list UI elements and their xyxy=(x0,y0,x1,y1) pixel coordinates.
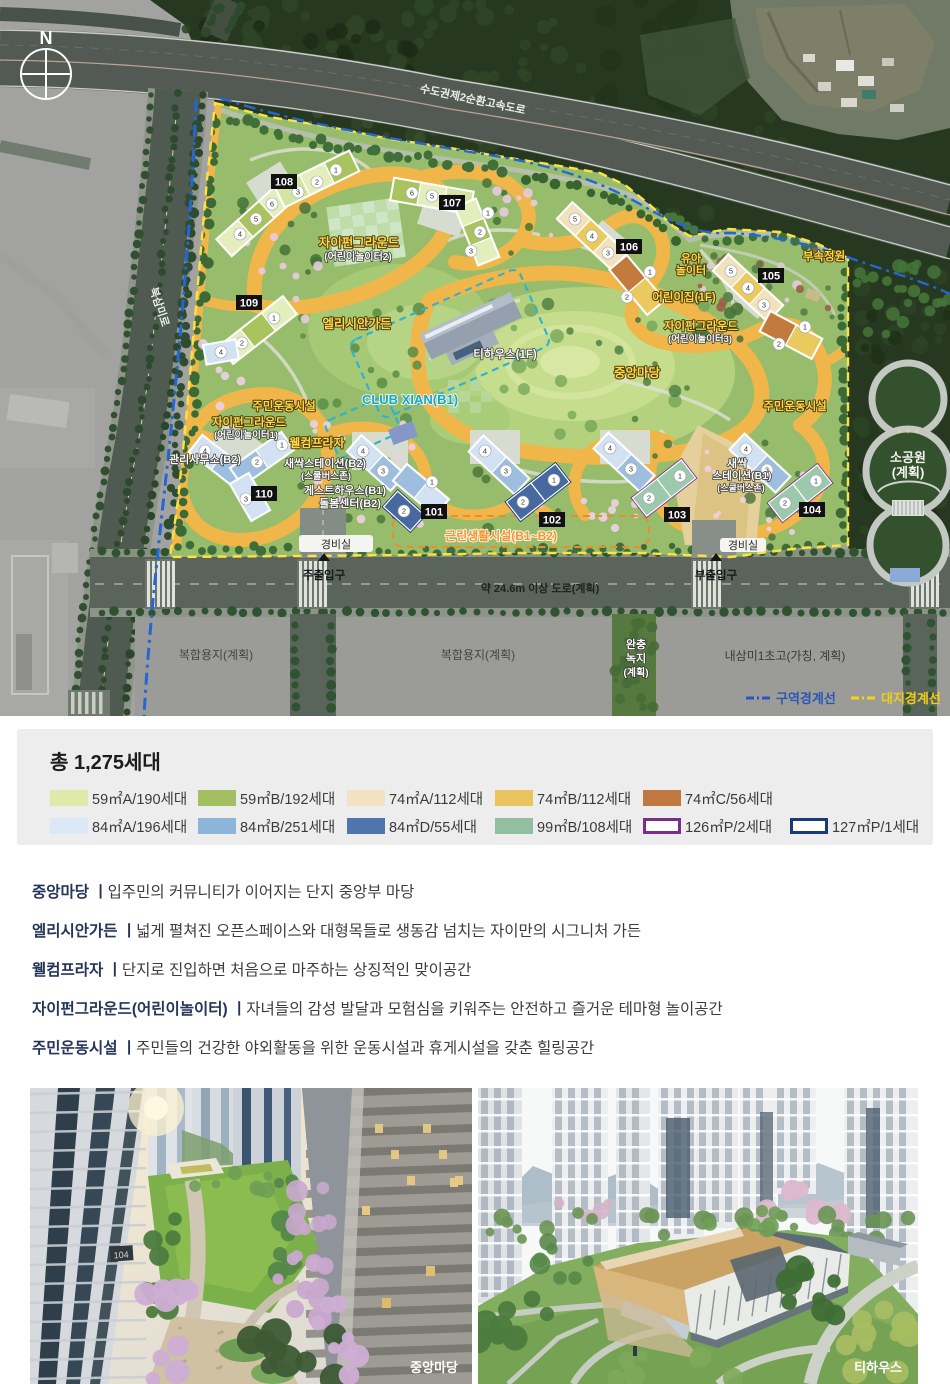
svg-text:약 24.6m 이상 도로(계획): 약 24.6m 이상 도로(계획) xyxy=(481,581,600,595)
svg-text:2: 2 xyxy=(402,507,406,516)
svg-text:복합용지(계획): 복합용지(계획) xyxy=(441,648,515,662)
svg-text:3: 3 xyxy=(606,249,610,258)
svg-text:대지경계선: 대지경계선 xyxy=(881,691,941,706)
svg-text:2: 2 xyxy=(315,178,319,187)
svg-text:어린이집(1F): 어린이집(1F) xyxy=(652,290,716,304)
svg-text:101: 101 xyxy=(425,507,443,519)
svg-text:3: 3 xyxy=(244,495,248,504)
svg-text:4: 4 xyxy=(219,348,223,357)
svg-text:106: 106 xyxy=(620,242,638,254)
svg-text:2: 2 xyxy=(255,458,259,467)
svg-text:(어린이놀이터1): (어린이놀이터1) xyxy=(214,429,278,441)
svg-text:(스쿨버스존): (스쿨버스존) xyxy=(301,470,351,482)
svg-text:6: 6 xyxy=(270,200,274,209)
svg-text:자이펀그라운드: 자이펀그라운드 xyxy=(664,319,738,333)
svg-text:4: 4 xyxy=(483,447,487,456)
svg-text:돌봄센터(B2): 돌봄센터(B2) xyxy=(319,496,381,510)
svg-text:108: 108 xyxy=(275,177,293,189)
svg-text:주민운동시설: 주민운동시설 xyxy=(252,399,315,413)
svg-text:복합용지(계획): 복합용지(계획) xyxy=(179,648,253,662)
svg-text:구역경계선: 구역경계선 xyxy=(776,691,836,706)
svg-text:웰컴프라자: 웰컴프라자 xyxy=(289,435,344,450)
svg-text:CLUB XIAN(B1): CLUB XIAN(B1) xyxy=(362,392,458,407)
svg-text:103: 103 xyxy=(668,510,686,522)
svg-text:1: 1 xyxy=(280,441,284,450)
svg-text:스테이션(B1): 스테이션(B1) xyxy=(712,469,771,482)
svg-text:3: 3 xyxy=(762,301,766,310)
svg-text:티하우스: 티하우스 xyxy=(854,1360,902,1375)
svg-text:3: 3 xyxy=(629,465,633,474)
svg-text:부출입구: 부출입구 xyxy=(695,568,738,582)
svg-text:1: 1 xyxy=(814,477,818,486)
svg-text:2: 2 xyxy=(478,228,482,237)
svg-text:경비실: 경비실 xyxy=(321,538,351,551)
svg-text:(스쿨버스존): (스쿨버스존) xyxy=(717,482,764,493)
svg-text:105: 105 xyxy=(762,271,780,283)
svg-text:1: 1 xyxy=(552,476,556,485)
svg-text:2: 2 xyxy=(783,499,787,508)
svg-text:✶ ✶ ✶: ✶ ✶ ✶ xyxy=(896,427,921,436)
svg-text:109: 109 xyxy=(240,298,258,310)
svg-text:104: 104 xyxy=(113,1249,129,1260)
svg-text:자이펀그라운드: 자이펀그라운드 xyxy=(319,235,400,250)
svg-text:엘리시안가든: 엘리시안가든 xyxy=(322,316,392,331)
svg-text:놀이터: 놀이터 xyxy=(676,263,706,277)
svg-text:107: 107 xyxy=(443,198,461,210)
svg-text:자이펀그라운드: 자이펀그라운드 xyxy=(212,415,286,429)
svg-text:5: 5 xyxy=(573,215,577,224)
svg-text:1: 1 xyxy=(430,478,434,487)
svg-text:4: 4 xyxy=(608,444,612,453)
svg-text:경비실: 경비실 xyxy=(728,539,758,552)
svg-text:게스트하우스(B1): 게스트하우스(B1) xyxy=(304,483,386,497)
svg-text:4: 4 xyxy=(744,445,748,454)
svg-text:근린생활시설(B1~B2): 근린생활시설(B1~B2) xyxy=(445,528,557,543)
svg-text:소공원: 소공원 xyxy=(890,450,926,465)
svg-text:1: 1 xyxy=(648,268,652,277)
svg-text:티하우스(1F): 티하우스(1F) xyxy=(473,347,537,361)
svg-text:6: 6 xyxy=(410,189,414,198)
svg-text:5: 5 xyxy=(254,215,258,224)
svg-text:4: 4 xyxy=(238,230,242,239)
svg-text:주출입구: 주출입구 xyxy=(303,568,346,582)
svg-text:2: 2 xyxy=(625,293,629,302)
svg-text:중앙마당: 중앙마당 xyxy=(614,365,661,380)
svg-text:102: 102 xyxy=(543,515,561,527)
svg-text:110: 110 xyxy=(255,489,273,501)
svg-text:주민운동시설: 주민운동시설 xyxy=(763,399,826,413)
svg-text:완충: 완충 xyxy=(626,637,646,651)
svg-text:1: 1 xyxy=(486,209,490,218)
svg-text:3: 3 xyxy=(504,467,508,476)
svg-text:2: 2 xyxy=(647,494,651,503)
svg-text:2: 2 xyxy=(521,498,525,507)
svg-text:3: 3 xyxy=(469,247,473,256)
svg-text:부속정원: 부속정원 xyxy=(803,249,845,263)
svg-text:5: 5 xyxy=(430,192,434,201)
svg-text:104: 104 xyxy=(803,505,822,517)
svg-text:3: 3 xyxy=(381,467,385,476)
svg-text:새싹: 새싹 xyxy=(727,456,747,470)
svg-text:새싹스테이션(B2): 새싹스테이션(B2) xyxy=(284,456,366,470)
svg-text:녹지: 녹지 xyxy=(626,651,646,665)
svg-text:1: 1 xyxy=(803,323,807,332)
svg-text:(계획): (계획) xyxy=(623,666,648,679)
svg-text:유아: 유아 xyxy=(681,251,702,265)
svg-text:N: N xyxy=(40,28,53,48)
svg-text:4: 4 xyxy=(746,284,750,293)
svg-text:1: 1 xyxy=(678,472,682,481)
svg-text:관리사무소(B2): 관리사무소(B2) xyxy=(169,452,241,466)
svg-text:(어린이놀이터3): (어린이놀이터3) xyxy=(668,333,732,345)
svg-text:4: 4 xyxy=(361,447,365,456)
svg-text:내삼미1초고(가칭, 계획): 내삼미1초고(가칭, 계획) xyxy=(725,649,846,663)
svg-text:2: 2 xyxy=(777,340,781,349)
svg-text:중앙마당: 중앙마당 xyxy=(410,1360,458,1375)
svg-text:1: 1 xyxy=(272,314,276,323)
svg-text:(계획): (계획) xyxy=(892,465,925,480)
svg-text:2: 2 xyxy=(240,339,244,348)
svg-text:5: 5 xyxy=(729,267,733,276)
svg-text:1: 1 xyxy=(334,166,338,175)
svg-text:4: 4 xyxy=(590,232,594,241)
svg-text:(어린이놀이터2): (어린이놀이터2) xyxy=(324,250,391,263)
